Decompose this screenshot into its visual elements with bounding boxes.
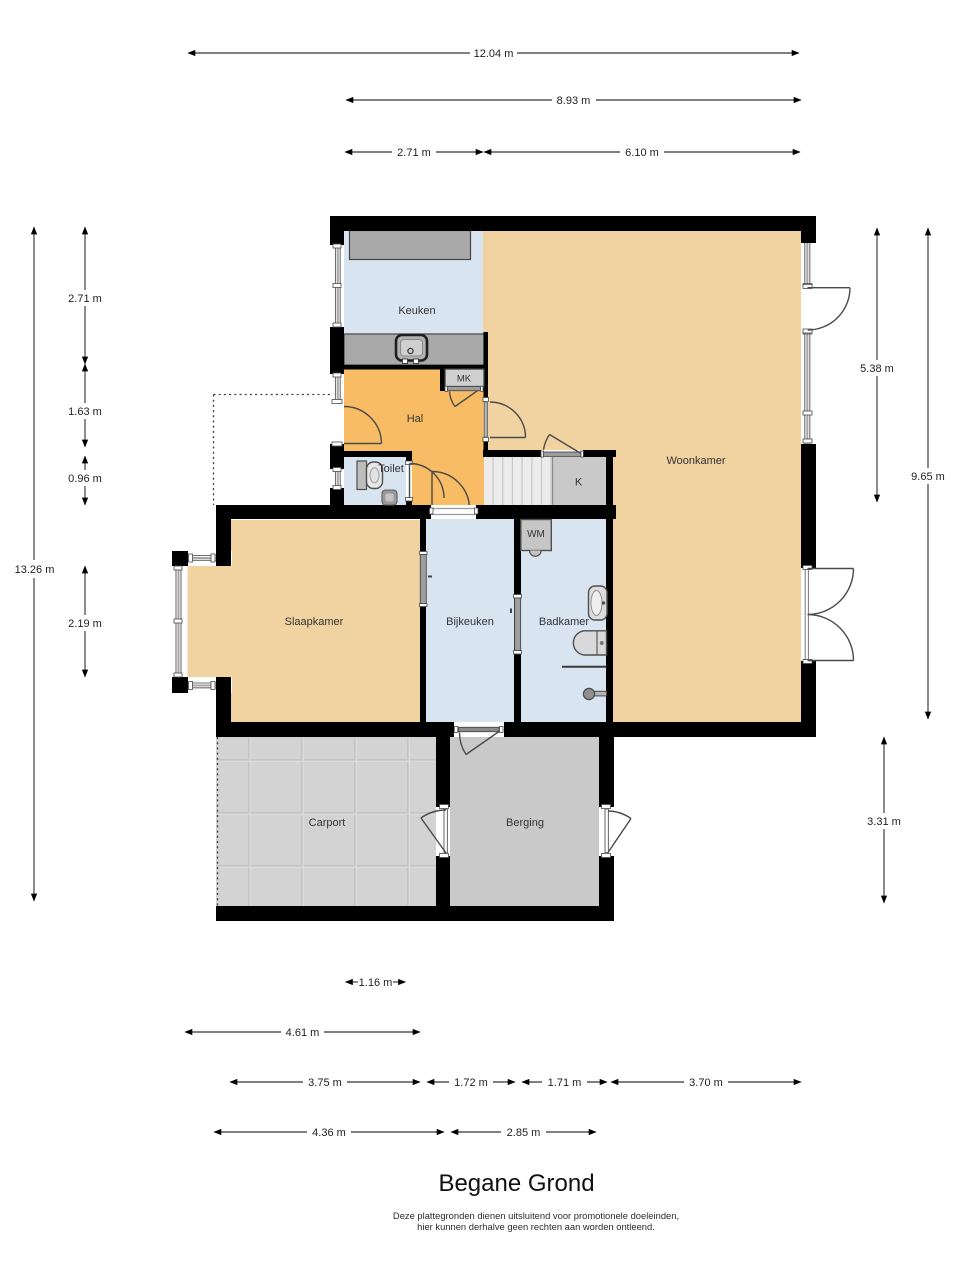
svg-text:Hal: Hal — [407, 413, 424, 425]
svg-text:WM: WM — [527, 529, 545, 540]
svg-text:0.96 m: 0.96 m — [68, 473, 102, 485]
svg-text:9.65 m: 9.65 m — [911, 471, 945, 483]
svg-text:2.19 m: 2.19 m — [68, 618, 102, 630]
svg-text:Toilet: Toilet — [378, 463, 404, 475]
svg-text:MK: MK — [457, 374, 472, 385]
svg-text:3.31 m: 3.31 m — [867, 816, 901, 828]
svg-text:3.70 m: 3.70 m — [689, 1077, 723, 1089]
svg-text:5.38 m: 5.38 m — [860, 363, 894, 375]
svg-text:1.72 m: 1.72 m — [454, 1077, 488, 1089]
svg-text:Badkamer: Badkamer — [539, 616, 589, 628]
svg-text:2.71 m: 2.71 m — [68, 293, 102, 305]
svg-text:Bijkeuken: Bijkeuken — [446, 616, 494, 628]
svg-text:1.63 m: 1.63 m — [68, 406, 102, 418]
svg-text:13.26 m: 13.26 m — [15, 564, 55, 576]
svg-text:2.85 m: 2.85 m — [507, 1127, 541, 1139]
svg-text:Keuken: Keuken — [398, 305, 435, 317]
svg-text:Woonkamer: Woonkamer — [666, 455, 725, 467]
svg-text:6.10 m: 6.10 m — [625, 147, 659, 159]
svg-text:Berging: Berging — [506, 817, 544, 829]
svg-text:12.04 m: 12.04 m — [474, 48, 514, 60]
svg-text:2.71 m: 2.71 m — [397, 147, 431, 159]
svg-text:1.71 m: 1.71 m — [548, 1077, 582, 1089]
svg-text:K: K — [575, 477, 583, 489]
svg-text:1.16 m: 1.16 m — [359, 977, 393, 989]
svg-text:Slaapkamer: Slaapkamer — [285, 616, 344, 628]
svg-text:Carport: Carport — [309, 817, 346, 829]
svg-text:3.75 m: 3.75 m — [308, 1077, 342, 1089]
svg-text:8.93 m: 8.93 m — [557, 95, 591, 107]
svg-text:Deze plattegronden dienen uits: Deze plattegronden dienen uitsluitend vo… — [393, 1210, 679, 1221]
svg-text:4.36 m: 4.36 m — [312, 1127, 346, 1139]
svg-text:hier kunnen derhalve geen rech: hier kunnen derhalve geen rechten aan wo… — [417, 1221, 655, 1232]
svg-text:4.61 m: 4.61 m — [286, 1027, 320, 1039]
svg-text:Begane Grond: Begane Grond — [438, 1170, 594, 1197]
